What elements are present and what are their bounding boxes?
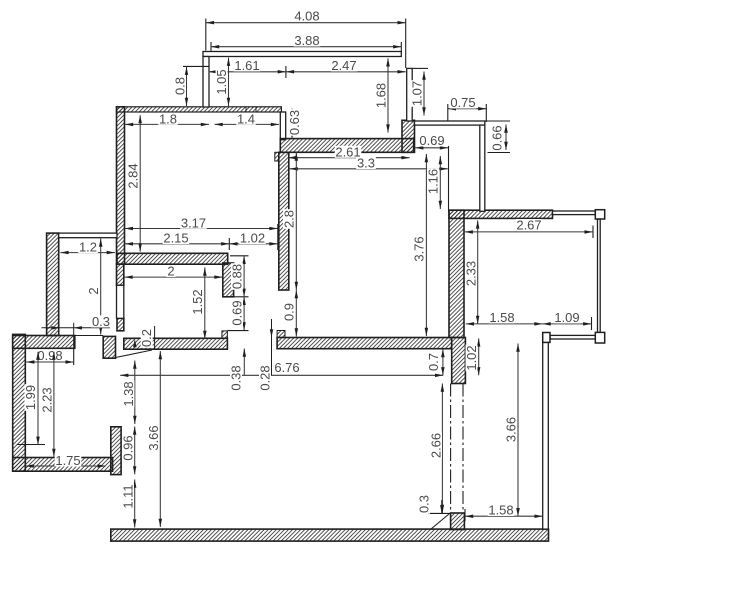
svg-text:1.99: 1.99 [23, 385, 38, 410]
svg-text:0.69: 0.69 [230, 300, 245, 325]
svg-text:0.69: 0.69 [419, 133, 444, 148]
svg-text:2.84: 2.84 [126, 163, 141, 188]
svg-text:0.7: 0.7 [426, 353, 441, 371]
svg-text:1.75: 1.75 [55, 453, 80, 468]
svg-text:1.58: 1.58 [489, 310, 514, 325]
svg-text:2.33: 2.33 [464, 261, 479, 286]
svg-text:1.05: 1.05 [214, 69, 229, 94]
svg-text:0.98: 0.98 [37, 348, 62, 363]
svg-text:6.76: 6.76 [274, 360, 299, 375]
svg-text:1.16: 1.16 [426, 169, 441, 194]
svg-text:1.52: 1.52 [190, 289, 205, 314]
svg-text:3.66: 3.66 [504, 417, 519, 442]
svg-text:1.02: 1.02 [464, 345, 479, 370]
svg-text:2.67: 2.67 [516, 218, 541, 233]
svg-text:0.3: 0.3 [417, 495, 432, 513]
svg-text:1.8: 1.8 [159, 111, 177, 126]
svg-text:0.96: 0.96 [121, 435, 136, 460]
svg-text:2: 2 [86, 287, 101, 294]
svg-text:2: 2 [167, 264, 174, 279]
svg-text:0.75: 0.75 [450, 95, 475, 110]
svg-text:1.2: 1.2 [79, 240, 97, 255]
svg-text:1.07: 1.07 [410, 81, 425, 106]
svg-text:2.15: 2.15 [163, 231, 188, 246]
svg-text:0.3: 0.3 [92, 314, 110, 329]
svg-text:1.58: 1.58 [488, 503, 513, 518]
svg-text:3.17: 3.17 [181, 215, 206, 230]
svg-text:0.2: 0.2 [139, 329, 154, 347]
svg-text:1.02: 1.02 [240, 231, 265, 246]
svg-text:1.68: 1.68 [374, 83, 389, 108]
svg-text:1.11: 1.11 [121, 484, 136, 508]
svg-text:0.9: 0.9 [282, 303, 297, 321]
svg-text:1.09: 1.09 [554, 310, 579, 325]
svg-text:3.88: 3.88 [294, 33, 319, 48]
svg-text:0.63: 0.63 [287, 110, 302, 135]
svg-text:4.08: 4.08 [294, 9, 319, 24]
svg-text:2.66: 2.66 [429, 433, 444, 458]
svg-text:3.66: 3.66 [146, 425, 161, 450]
svg-text:2.47: 2.47 [331, 58, 356, 73]
svg-text:1.4: 1.4 [237, 111, 255, 126]
svg-text:3.76: 3.76 [412, 236, 427, 261]
svg-text:0.8: 0.8 [173, 77, 188, 95]
svg-text:1.38: 1.38 [121, 381, 136, 406]
svg-text:1.61: 1.61 [234, 58, 259, 73]
svg-text:2.8: 2.8 [282, 210, 297, 228]
svg-text:2.23: 2.23 [40, 387, 55, 412]
svg-text:0.38: 0.38 [229, 365, 244, 390]
svg-text:0.88: 0.88 [230, 264, 245, 289]
svg-text:0.66: 0.66 [490, 125, 505, 150]
svg-text:0.28: 0.28 [258, 365, 273, 390]
svg-text:3.3: 3.3 [357, 156, 375, 171]
